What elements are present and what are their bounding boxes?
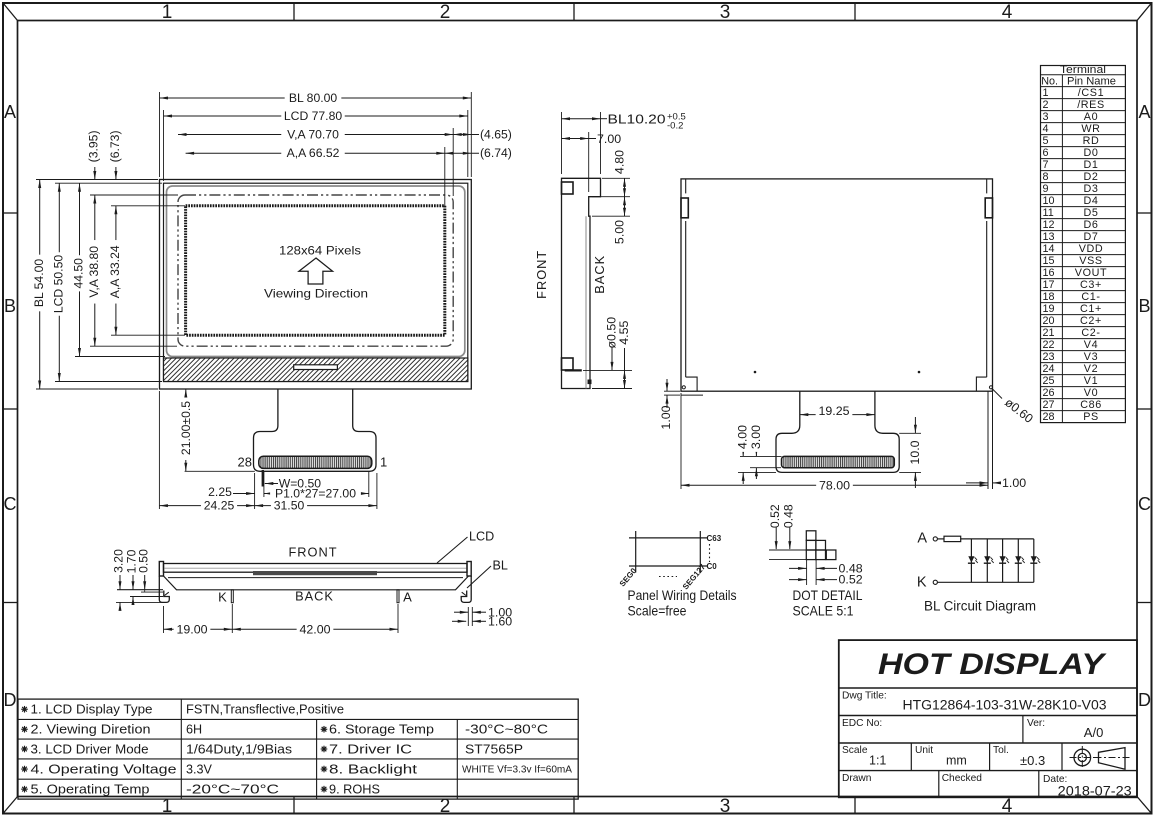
svg-text:12: 12	[1043, 219, 1055, 231]
svg-text:6: 6	[1043, 147, 1049, 159]
svg-text:31.50: 31.50	[274, 499, 305, 513]
svg-text:WHITE Vf=3.3v If=60mA: WHITE Vf=3.3v If=60mA	[462, 764, 572, 775]
svg-text:(6.74): (6.74)	[480, 146, 512, 160]
svg-text:4.00: 4.00	[736, 425, 750, 449]
svg-text:4: 4	[1002, 2, 1013, 23]
svg-text:18: 18	[1043, 291, 1055, 303]
svg-text:14: 14	[1043, 243, 1055, 255]
svg-text:1: 1	[1043, 87, 1049, 99]
svg-text:C0: C0	[707, 562, 718, 571]
svg-text:(4.65): (4.65)	[480, 128, 512, 142]
svg-text:A: A	[403, 590, 412, 605]
svg-text:Panel Wiring Details: Panel Wiring Details	[628, 588, 737, 603]
svg-text:128x64 Pixels: 128x64 Pixels	[279, 244, 361, 258]
svg-text:5. Operating Temp: 5. Operating Temp	[31, 783, 150, 797]
svg-text:26: 26	[1043, 387, 1055, 399]
svg-text:C86: C86	[1080, 399, 1102, 411]
svg-text:Terminal: Terminal	[1060, 64, 1106, 76]
svg-text:0.52: 0.52	[839, 573, 863, 587]
svg-text:8: 8	[1043, 171, 1049, 183]
svg-text:C2-: C2-	[1081, 327, 1100, 339]
svg-text:6. Storage Temp: 6. Storage Temp	[329, 723, 434, 737]
svg-text:D2: D2	[1083, 171, 1098, 183]
svg-text:15: 15	[1043, 255, 1055, 267]
svg-text:K: K	[917, 575, 927, 591]
svg-text:20: 20	[1043, 315, 1055, 327]
svg-text:4.55: 4.55	[617, 321, 631, 345]
svg-text:4.80: 4.80	[612, 150, 626, 174]
svg-text:7. Driver IC: 7. Driver IC	[329, 742, 412, 756]
svg-text:-30°C~80°C: -30°C~80°C	[465, 723, 548, 737]
svg-text:1: 1	[380, 455, 387, 470]
svg-text:C1+: C1+	[1080, 303, 1102, 315]
svg-text:EDC No:: EDC No:	[842, 718, 882, 729]
svg-text:78.00: 78.00	[819, 478, 850, 492]
svg-text:DOT DETAIL: DOT DETAIL	[793, 588, 863, 603]
svg-text:(6.73): (6.73)	[108, 130, 122, 162]
svg-text:10: 10	[1043, 195, 1055, 207]
svg-text:BL 54.00: BL 54.00	[32, 259, 46, 308]
svg-text:D6: D6	[1083, 219, 1098, 231]
svg-text:(3.95): (3.95)	[87, 130, 101, 162]
svg-text:1. LCD Display Type: 1. LCD Display Type	[31, 703, 153, 717]
svg-text:V,A 70.70: V,A 70.70	[287, 128, 339, 142]
svg-text:FRONT: FRONT	[288, 545, 337, 560]
svg-text:3: 3	[720, 2, 731, 23]
svg-text:Pin Name: Pin Name	[1067, 75, 1116, 87]
svg-text:C63: C63	[707, 534, 722, 543]
svg-text:9. ROHS: 9. ROHS	[329, 783, 380, 797]
svg-text:Drawn: Drawn	[842, 773, 871, 784]
svg-text:V0: V0	[1084, 387, 1098, 399]
svg-text:D: D	[4, 690, 17, 710]
svg-text:3.00: 3.00	[749, 425, 763, 449]
svg-text:FRONT: FRONT	[534, 250, 549, 299]
svg-text:A,A 66.52: A,A 66.52	[287, 146, 340, 160]
svg-text:3. LCD Driver Mode: 3. LCD Driver Mode	[31, 742, 149, 756]
svg-text:28: 28	[1043, 411, 1055, 423]
svg-text:42.00: 42.00	[299, 622, 330, 636]
svg-text:D5: D5	[1083, 207, 1098, 219]
svg-text:Unit: Unit	[915, 745, 933, 756]
svg-text:D0: D0	[1083, 147, 1098, 159]
svg-text:2: 2	[1043, 99, 1049, 111]
svg-text:10.0: 10.0	[908, 440, 922, 464]
svg-text:22: 22	[1043, 339, 1055, 351]
svg-text:1: 1	[162, 2, 173, 23]
svg-text:4: 4	[1043, 123, 1049, 135]
svg-text:24: 24	[1043, 363, 1055, 375]
svg-text:D7: D7	[1083, 231, 1098, 243]
svg-text:mm: mm	[946, 754, 967, 768]
svg-text:D: D	[1138, 690, 1151, 710]
svg-text:FSTN,Transflective,Positive: FSTN,Transflective,Positive	[186, 703, 344, 717]
svg-text:V4: V4	[1084, 339, 1098, 351]
svg-text:HTG12864-103-31W-28K10-V03: HTG12864-103-31W-28K10-V03	[903, 698, 1107, 714]
svg-text:A: A	[4, 102, 16, 122]
svg-text:WR: WR	[1081, 123, 1100, 135]
svg-text:Ver:: Ver:	[1027, 718, 1045, 729]
svg-text:D3: D3	[1083, 183, 1098, 195]
svg-text:ST7565P: ST7565P	[465, 742, 523, 756]
svg-text:2.25: 2.25	[208, 485, 232, 499]
svg-text:13: 13	[1043, 231, 1055, 243]
svg-text:19: 19	[1043, 303, 1055, 315]
svg-text:SCALE 5:1: SCALE 5:1	[793, 604, 854, 619]
svg-text:V2: V2	[1084, 363, 1098, 375]
svg-text:19.25: 19.25	[818, 404, 849, 418]
svg-text:23: 23	[1043, 351, 1055, 363]
svg-text:BACK: BACK	[295, 589, 334, 604]
svg-text:16: 16	[1043, 267, 1055, 279]
svg-text:A: A	[917, 531, 927, 547]
svg-text:3.3V: 3.3V	[186, 762, 213, 776]
svg-text:BL: BL	[493, 559, 508, 573]
svg-text:21.00±0.5: 21.00±0.5	[179, 401, 193, 455]
svg-text:RD: RD	[1083, 135, 1100, 147]
svg-text:9: 9	[1043, 183, 1049, 195]
svg-text:2018-07-23: 2018-07-23	[1058, 784, 1132, 799]
svg-text:Tol.: Tol.	[993, 745, 1009, 756]
svg-text:1.00: 1.00	[659, 405, 673, 429]
svg-text:D1: D1	[1083, 159, 1098, 171]
svg-text:HOT DISPLAY: HOT DISPLAY	[878, 648, 1107, 681]
svg-text:VDD: VDD	[1079, 243, 1104, 255]
svg-text:11: 11	[1043, 207, 1054, 219]
svg-text:VSS: VSS	[1079, 255, 1102, 267]
svg-text:C1-: C1-	[1081, 291, 1100, 303]
svg-text:V1: V1	[1084, 375, 1098, 387]
svg-text:3: 3	[720, 796, 731, 817]
svg-text:44.50: 44.50	[72, 258, 86, 289]
svg-text:4: 4	[1002, 796, 1013, 817]
svg-text:B: B	[1138, 296, 1150, 316]
svg-text:Scale: Scale	[842, 745, 868, 756]
svg-text:PS: PS	[1083, 411, 1099, 423]
svg-text:7.00: 7.00	[597, 132, 621, 146]
svg-text:C: C	[1138, 494, 1151, 514]
svg-text:2: 2	[440, 2, 451, 23]
svg-text:1.00: 1.00	[1002, 476, 1026, 490]
svg-text:No.: No.	[1041, 75, 1058, 87]
svg-text:/RES: /RES	[1077, 99, 1105, 111]
svg-text:7: 7	[1043, 159, 1049, 171]
svg-text:V,A 38.80: V,A 38.80	[87, 246, 101, 298]
svg-text:LCD 50.50: LCD 50.50	[52, 255, 66, 313]
svg-text:BL10.20: BL10.20	[608, 111, 666, 126]
svg-text:17: 17	[1043, 279, 1055, 291]
svg-text:±0.3: ±0.3	[1020, 753, 1045, 768]
svg-text:25: 25	[1043, 375, 1055, 387]
svg-text:C: C	[4, 494, 17, 514]
svg-text:B: B	[4, 296, 16, 316]
svg-text:LCD 77.80: LCD 77.80	[284, 109, 342, 123]
svg-text:A0: A0	[1084, 111, 1098, 123]
svg-text:-0.2: -0.2	[667, 121, 683, 132]
svg-text:V3: V3	[1084, 351, 1098, 363]
svg-text:BACK: BACK	[592, 255, 607, 294]
svg-text:1/64Duty,1/9Bias: 1/64Duty,1/9Bias	[186, 742, 292, 756]
svg-text:19.00: 19.00	[176, 622, 207, 636]
svg-text:VOUT: VOUT	[1075, 267, 1107, 279]
svg-text:8. Backlight: 8. Backlight	[329, 762, 418, 776]
svg-text:A/0: A/0	[1084, 725, 1104, 740]
svg-text:1.60: 1.60	[488, 614, 512, 628]
svg-text:1:1: 1:1	[869, 754, 886, 768]
svg-text:21: 21	[1043, 327, 1055, 339]
svg-text:D4: D4	[1083, 195, 1098, 207]
svg-text:Viewing Direction: Viewing Direction	[264, 287, 368, 301]
svg-text:C3+: C3+	[1080, 279, 1102, 291]
svg-text:0.50: 0.50	[137, 549, 151, 573]
svg-text:Checked: Checked	[942, 773, 983, 784]
svg-text:0.48: 0.48	[781, 504, 795, 528]
svg-text:4. Operating Voltage: 4. Operating Voltage	[31, 762, 177, 776]
svg-text:A,A 33.24: A,A 33.24	[108, 245, 122, 298]
svg-text:C2+: C2+	[1080, 315, 1102, 327]
svg-text:27: 27	[1043, 399, 1055, 411]
svg-text:/CS1: /CS1	[1078, 87, 1104, 99]
svg-text:A: A	[1138, 102, 1150, 122]
svg-text:Scale=free: Scale=free	[628, 604, 687, 619]
svg-text:LCD: LCD	[469, 530, 494, 544]
svg-text:BL 80.00: BL 80.00	[289, 91, 338, 105]
svg-text:-20°C~70°C: -20°C~70°C	[186, 783, 279, 797]
svg-text:2. Viewing Diretion: 2. Viewing Diretion	[31, 723, 151, 737]
svg-text:5.00: 5.00	[612, 220, 626, 244]
svg-text:Dwg Title:: Dwg Title:	[842, 691, 887, 702]
svg-text:3: 3	[1043, 111, 1049, 123]
svg-text:5: 5	[1043, 135, 1049, 147]
svg-text:K: K	[218, 590, 227, 605]
svg-text:28: 28	[238, 455, 252, 470]
svg-text:24.25: 24.25	[204, 499, 235, 513]
svg-text:6H: 6H	[186, 723, 202, 737]
svg-text:0.52: 0.52	[768, 504, 782, 528]
svg-text:BL Circuit Diagram: BL Circuit Diagram	[924, 599, 1036, 615]
